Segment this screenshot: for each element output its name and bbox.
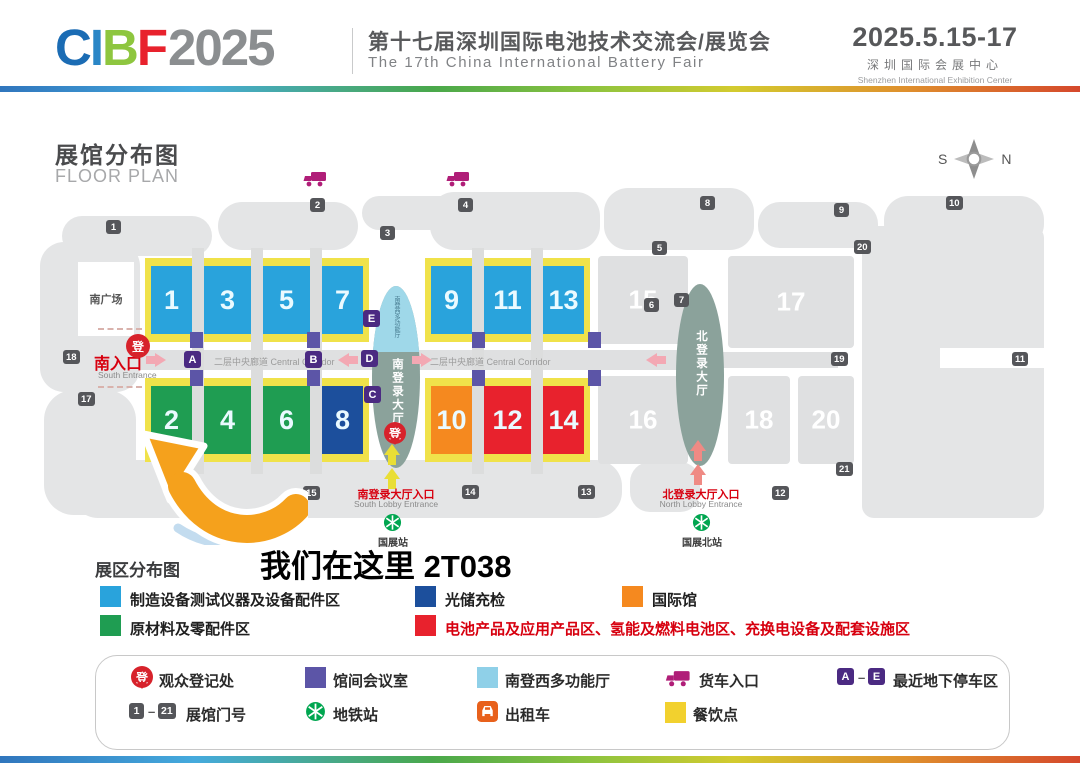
compass-south-label: S	[938, 151, 947, 167]
rainbow-bar-bottom	[0, 756, 1080, 763]
corridor-arrow-right-icon	[412, 353, 432, 367]
meeting-room-connector	[588, 370, 601, 386]
fair-title-en: The 17th China International Battery Fai…	[368, 54, 705, 71]
building-notch	[940, 348, 1046, 368]
gate-badge-14: 14	[462, 485, 479, 499]
logo-year: 2025	[168, 19, 273, 76]
gate-badge-12: 12	[772, 486, 789, 500]
hall-18-number: 18	[745, 405, 774, 436]
gate-badge-21: 21	[836, 462, 853, 476]
hall-11: 11	[484, 258, 531, 342]
rainbow-bar-top	[0, 86, 1080, 92]
hall-16-number: 16	[629, 405, 658, 436]
hall-7: 7	[322, 258, 369, 342]
logo-letter-b: B	[102, 19, 137, 76]
legend-parking-a-badge: A	[837, 668, 854, 685]
north-entry-arrow-icon	[690, 440, 706, 461]
fair-title-cn: 第十七届深圳国际电池技术交流会/展览会	[368, 26, 771, 56]
cibf-logo: CIBF2025	[55, 18, 273, 77]
parking-badge-c: C	[364, 386, 381, 403]
header-divider	[352, 28, 353, 74]
entrance-steps	[98, 328, 142, 330]
south-multi-hall-label: 南登西多功能厅	[392, 296, 401, 338]
compass-north-label: N	[1001, 151, 1011, 167]
hall-14: 14	[543, 378, 590, 462]
hall-17-number: 17	[777, 287, 806, 318]
parking-badge-d: D	[361, 350, 378, 367]
gate-badge-20: 20	[854, 240, 871, 254]
legend-taxi-icon	[477, 701, 498, 722]
hall-12: 12	[484, 378, 531, 462]
zone-legend-title: 展区分布图	[95, 556, 180, 581]
meeting-room-connector	[472, 370, 485, 386]
parking-badge-b: B	[305, 351, 322, 368]
metro-icon	[692, 513, 711, 532]
map-title-en: FLOOR PLAN	[55, 166, 179, 187]
legend-gate-1-badge: 1	[129, 703, 144, 719]
gate-badge-18: 18	[63, 350, 80, 364]
corridor-arrow-left-icon	[338, 353, 358, 367]
parking-badge-e: E	[363, 310, 380, 327]
zone-swatch-red	[415, 615, 436, 636]
legend-parking-e-badge: E	[868, 668, 885, 685]
north-entry-arrow-icon	[690, 464, 706, 485]
legend-truck-icon	[665, 669, 691, 688]
zone-label-materials: 原材料及零配件区	[130, 618, 250, 639]
building-outline	[604, 188, 754, 250]
we-are-here-callout: 我们在这里 2T038	[260, 541, 512, 586]
hall-8: 8	[322, 378, 369, 462]
gate-badge-7: 7	[674, 293, 689, 307]
south-plaza: 南广场	[78, 262, 134, 336]
entrance-steps	[98, 386, 142, 388]
hall-9: 9	[425, 258, 472, 342]
meeting-room-connector	[307, 332, 320, 348]
hall-20-number: 20	[812, 405, 841, 436]
gate-badge-9: 9	[834, 203, 849, 217]
gate-badge-10: 10	[946, 196, 963, 210]
metro-icon	[383, 513, 402, 532]
truck-icon	[303, 170, 327, 188]
south-lobby-registration-pin: 登	[384, 422, 406, 444]
gate-badge-13: 13	[578, 485, 595, 499]
zone-label-international: 国际馆	[652, 589, 697, 610]
hall-10: 10	[425, 378, 472, 462]
gate-badge-4: 4	[458, 198, 473, 212]
venue-name-en: Shenzhen International Exhibition Center	[830, 75, 1040, 85]
meeting-room-connector	[307, 370, 320, 386]
registration-pin: 登	[126, 334, 150, 358]
gate-badge-5: 5	[652, 241, 667, 255]
gate-badge-11: 11	[1012, 352, 1028, 366]
truck-icon	[446, 170, 470, 188]
compass: S N	[938, 138, 1011, 180]
meeting-room-connector	[472, 332, 485, 348]
parking-building	[862, 226, 1044, 518]
event-info: 2025.5.15-17 深圳国际会展中心 Shenzhen Internati…	[830, 22, 1040, 85]
corridor-label-east: 二层中央廊道 Central Corridor	[430, 355, 551, 368]
zone-label-equipment: 制造设备测试仪器及设备配件区	[130, 589, 340, 610]
gate-badge-19: 19	[831, 352, 848, 366]
logo-letter-i: I	[90, 19, 102, 76]
metro-station-north: 国展北站	[682, 534, 722, 549]
hall-3: 3	[204, 258, 251, 342]
building-outline	[430, 192, 600, 250]
logo-letter-c: C	[55, 19, 90, 76]
map-title-cn: 展馆分布图	[55, 136, 180, 170]
compass-star-icon	[953, 138, 995, 180]
zone-swatch-green	[100, 615, 121, 636]
event-dates: 2025.5.15-17	[830, 22, 1040, 53]
legend-metro-icon	[305, 701, 326, 722]
south-plaza-label: 南广场	[90, 291, 123, 307]
hall-1: 1	[145, 258, 192, 342]
building-outline	[218, 202, 358, 250]
gate-badge-2: 2	[310, 198, 325, 212]
south-entrance-label-en: South Entrance	[98, 370, 157, 380]
corridor-arrow-right-icon	[146, 353, 166, 367]
hall-5: 5	[263, 258, 310, 342]
zone-label-battery: 电池产品及应用产品区、氢能及燃料电池区、充换电设备及配套设施区	[445, 618, 910, 639]
parking-badge-a: A	[184, 351, 201, 368]
zone-swatch-navy	[415, 586, 436, 607]
north-lobby-label: 北登录大厅	[693, 330, 709, 398]
zone-swatch-orange	[622, 586, 643, 607]
gate-badge-3: 3	[380, 226, 395, 240]
meeting-room-connector	[588, 332, 601, 348]
logo-letter-f: F	[137, 19, 166, 76]
north-lobby-entrance-en: North Lobby Entrance	[660, 499, 743, 509]
south-lobby-entrance-en: South Lobby Entrance	[354, 499, 438, 509]
meeting-room-connector	[190, 370, 203, 386]
zone-label-storage: 光储充检	[445, 589, 505, 610]
legend-registration-pin: 登	[131, 666, 153, 688]
legend-gate-21-badge: 21	[158, 703, 176, 719]
floor-plan-poster: CIBF2025 第十七届深圳国际电池技术交流会/展览会 The 17th Ch…	[0, 0, 1080, 763]
venue-name-cn: 深圳国际会展中心	[830, 56, 1040, 73]
corridor-arrow-left-icon	[646, 353, 666, 367]
south-lobby-label: 南登录大厅	[389, 358, 405, 426]
hall-13: 13	[543, 258, 590, 342]
gate-badge-8: 8	[700, 196, 715, 210]
zone-swatch-blue	[100, 586, 121, 607]
gate-badge-6: 6	[644, 298, 659, 312]
gate-badge-1: 1	[106, 220, 121, 234]
north-corridor	[718, 352, 838, 368]
gate-badge-17: 17	[78, 392, 95, 406]
meeting-room-connector	[190, 332, 203, 348]
we-are-here-arrow-icon	[138, 420, 308, 545]
